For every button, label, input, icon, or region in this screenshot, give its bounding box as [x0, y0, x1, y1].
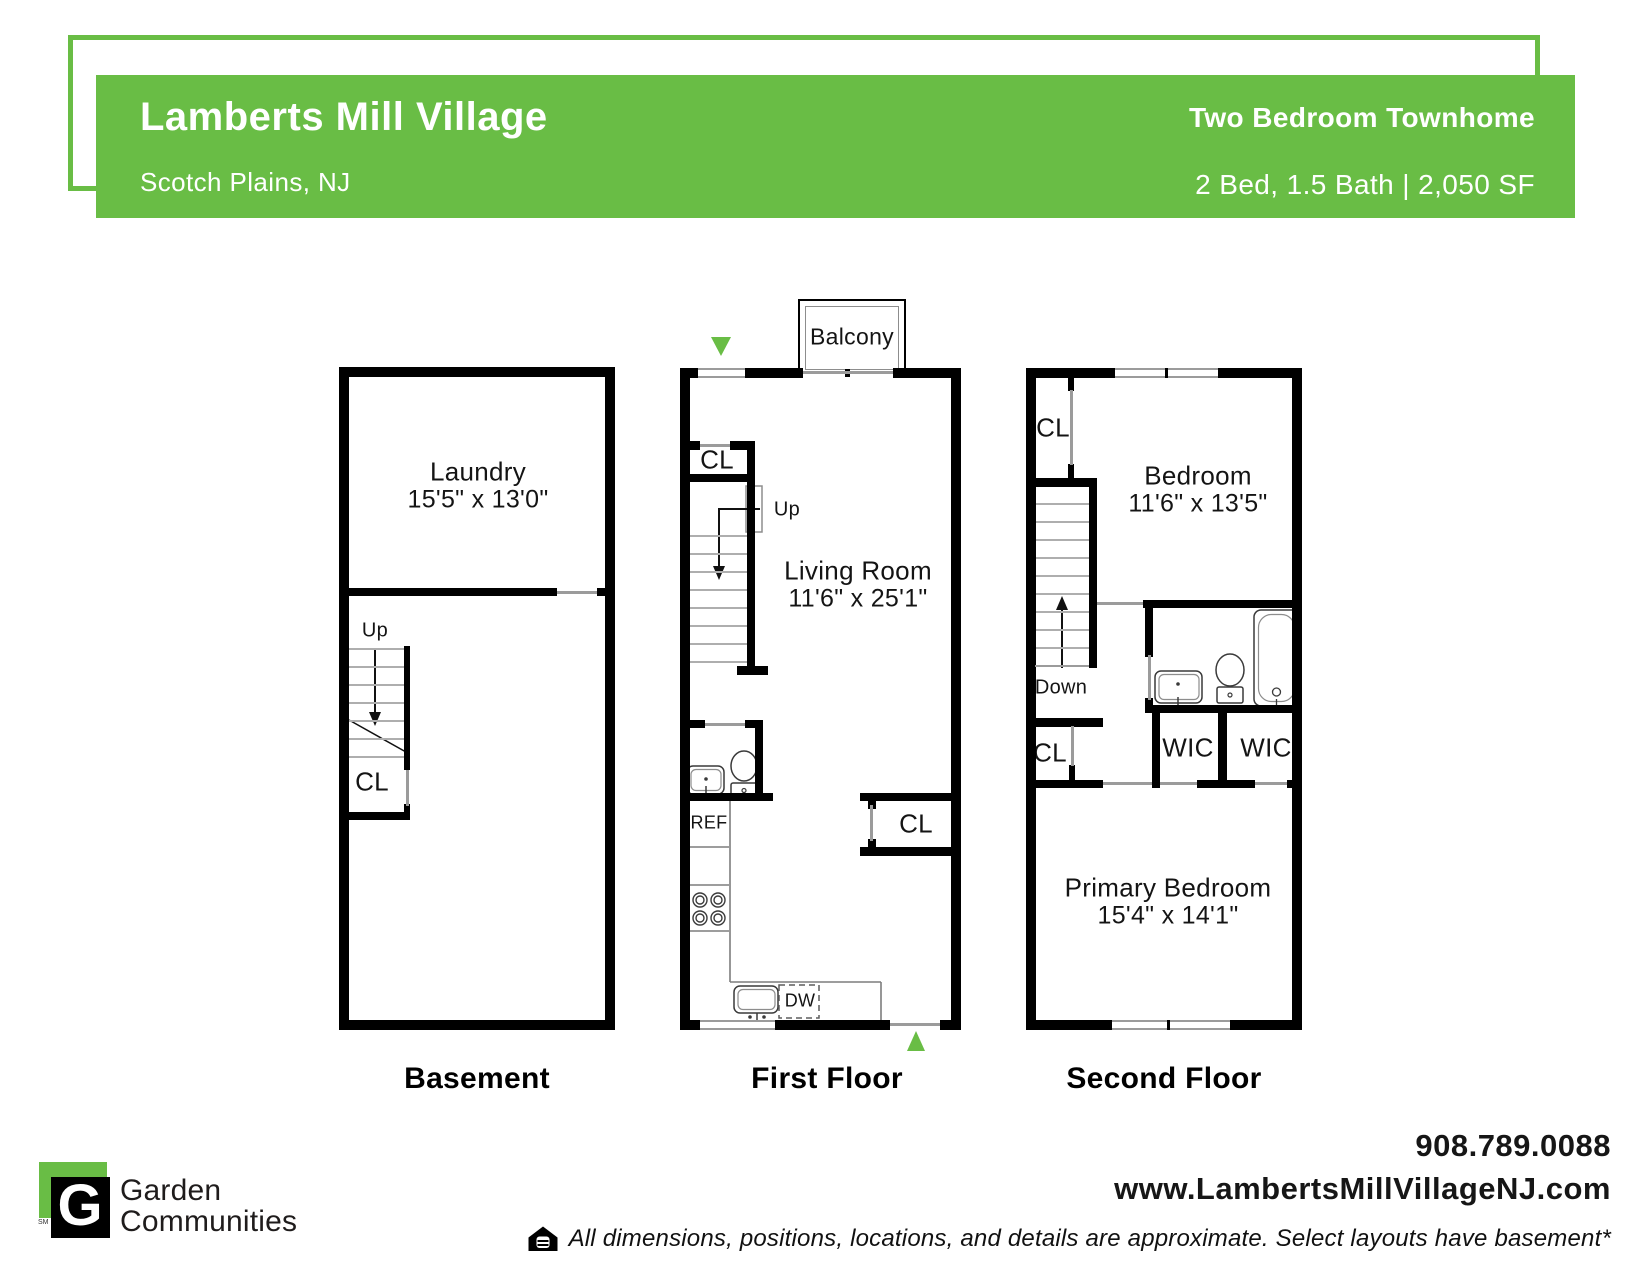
bathroom-toilet-icon [1216, 654, 1244, 703]
door-opening [1071, 726, 1074, 766]
phone-number: 908.789.0088 [1415, 1128, 1611, 1164]
living-room-dims: 11'6" x 25'1" [788, 585, 927, 614]
basement-stair-arrow-icon [369, 650, 381, 726]
wall-segment [1218, 713, 1227, 788]
disclaimer-text: All dimensions, positions, locations, an… [569, 1225, 1611, 1253]
brand-line1: Garden [120, 1175, 297, 1206]
door-opening [406, 770, 409, 806]
second-closet-top-label: CL [1036, 413, 1070, 444]
wall-segment [339, 1020, 615, 1030]
wall-segment [860, 793, 961, 801]
wall-segment [1026, 368, 1036, 1030]
wall-segment [940, 1020, 961, 1030]
door-opening [1035, 665, 1089, 667]
wall-segment [1068, 464, 1074, 478]
window [700, 1020, 775, 1030]
stair-tread [349, 738, 404, 740]
stair-tread [1036, 629, 1089, 631]
wall-segment [1026, 478, 1097, 487]
entry-arrow-down-icon [711, 337, 731, 356]
wall-segment [597, 588, 605, 596]
stair-tread [349, 648, 404, 650]
basement-up-label: Up [362, 620, 388, 643]
basement-closet-label: CL [355, 767, 389, 798]
wall-segment [1218, 368, 1302, 378]
stair-tread [349, 666, 404, 668]
stair-tread [690, 643, 747, 645]
wall-segment [1143, 600, 1302, 608]
brand-name: Garden Communities [120, 1175, 297, 1237]
stair-tread [690, 661, 747, 663]
disclaimer: All dimensions, positions, locations, an… [525, 1224, 1611, 1253]
window [1112, 1020, 1167, 1030]
wall-segment [1145, 600, 1153, 657]
wall-segment [1089, 478, 1097, 668]
basement-floor-name: Basement [404, 1062, 550, 1096]
window [1170, 1020, 1230, 1030]
down-label: Down [1035, 677, 1087, 700]
wall-segment [775, 1020, 890, 1030]
primary-bedroom-dims: 15'4" x 14'1" [1097, 902, 1238, 931]
dishwasher-label: DW [785, 991, 816, 1012]
wall-segment [1152, 713, 1160, 788]
stair-tread [349, 720, 404, 722]
wall-segment [1152, 780, 1160, 788]
stair-tread [690, 589, 747, 591]
second-floor-name: Second Floor [1066, 1062, 1261, 1096]
window [698, 368, 745, 378]
stair-break-line [349, 720, 406, 752]
stair-tread [349, 756, 404, 758]
stair-tread [1036, 557, 1089, 559]
stove-burners-icon [693, 893, 725, 925]
kitchen-sink-icon [734, 986, 778, 1020]
powder-room-sink-icon [687, 766, 724, 794]
stair-tread [1036, 539, 1089, 541]
second-closet-mid-label: CL [1033, 738, 1067, 769]
door-opening [1097, 602, 1143, 605]
wall-segment [680, 474, 755, 482]
door-opening [557, 591, 597, 594]
wall-segment [680, 793, 773, 801]
wall-segment [404, 646, 410, 770]
window [1115, 368, 1165, 378]
stair-tread [349, 702, 404, 704]
wall-segment [1026, 780, 1103, 788]
wall-segment [747, 482, 755, 673]
first-floor-name: First Floor [751, 1062, 903, 1096]
logo-service-mark: SM [38, 1219, 49, 1226]
stair-tread [690, 535, 747, 537]
door-opening [1160, 782, 1197, 785]
stair-tread [690, 625, 747, 627]
door-opening [803, 371, 893, 374]
first-up-label: Up [774, 499, 800, 522]
website-url: www.LambertsMillVillageNJ.com [1114, 1171, 1611, 1207]
first-closet-right-label: CL [899, 809, 933, 840]
wall-segment [339, 367, 349, 1030]
stair-tread [690, 571, 747, 573]
wall-segment [1197, 780, 1255, 788]
stair-tread [1036, 611, 1089, 613]
door-opening [890, 1023, 940, 1026]
primary-bedroom-label: Primary Bedroom [1065, 873, 1272, 904]
wall-segment [605, 367, 615, 1030]
wall-segment [747, 441, 755, 482]
stair-tread [690, 607, 747, 609]
wall-segment [1145, 705, 1302, 713]
bathroom-sink-icon [1155, 671, 1202, 706]
wic-left-label: WIC [1162, 733, 1213, 764]
wall-segment [1292, 368, 1302, 1030]
floorplan-flyer: Lamberts Mill Village Scotch Plains, NJ … [0, 0, 1651, 1276]
stair-tread [1036, 575, 1089, 577]
wall-segment [951, 368, 961, 1030]
stair-tread [1036, 503, 1089, 505]
stair-tread [690, 553, 747, 555]
wall-segment [1069, 765, 1075, 781]
wall-segment [1026, 718, 1103, 727]
door-opening [1070, 390, 1073, 465]
wall-segment [339, 367, 615, 377]
wall-segment [680, 368, 690, 1030]
bedroom-dims: 11'6" x 13'5" [1128, 490, 1267, 519]
wall-segment [349, 588, 557, 596]
logo-g-letter: G [44, 1172, 116, 1240]
living-room-label: Living Room [784, 556, 932, 587]
wall-segment [1026, 1020, 1112, 1030]
first-closet-top-label: CL [700, 445, 734, 476]
bedroom-label: Bedroom [1144, 461, 1252, 492]
second-floor-stair-arrow-icon [1056, 596, 1068, 668]
wic-right-label: WIC [1240, 733, 1291, 764]
wall-segment [745, 368, 803, 378]
wall-segment [737, 666, 768, 675]
stair-tread [349, 684, 404, 686]
wall-segment [1287, 780, 1302, 788]
door-opening [700, 444, 730, 447]
powder-room-toilet-icon [731, 751, 757, 798]
stair-tread [1036, 521, 1089, 523]
wall-segment [860, 847, 961, 856]
brand-line2: Communities [120, 1206, 297, 1237]
house-icon [525, 1224, 561, 1253]
wall-segment [680, 441, 700, 450]
entry-arrow-up-icon [907, 1031, 925, 1051]
wall-segment [755, 720, 763, 801]
wall-segment [1068, 377, 1074, 391]
door-opening [870, 805, 873, 841]
wall-segment [1230, 1020, 1302, 1030]
wall-segment [680, 1020, 700, 1030]
balcony-label: Balcony [810, 324, 894, 351]
kitchen-counter-lines [689, 801, 881, 1020]
fridge-label: REF [691, 813, 728, 834]
wall-segment [349, 812, 410, 820]
window [1168, 368, 1218, 378]
door-opening [705, 723, 745, 726]
door-opening [1103, 782, 1152, 785]
floorplan-canvas: Laundry 15'5" x 13'0" Up CL Balcony CL U… [0, 0, 1651, 1276]
laundry-label: Laundry [430, 457, 526, 488]
door-opening [1148, 655, 1151, 700]
door-opening [1255, 782, 1287, 785]
wall-segment [680, 720, 705, 728]
stair-tread [1036, 593, 1089, 595]
laundry-dims: 15'5" x 13'0" [407, 486, 548, 515]
stair-tread [1036, 647, 1089, 649]
